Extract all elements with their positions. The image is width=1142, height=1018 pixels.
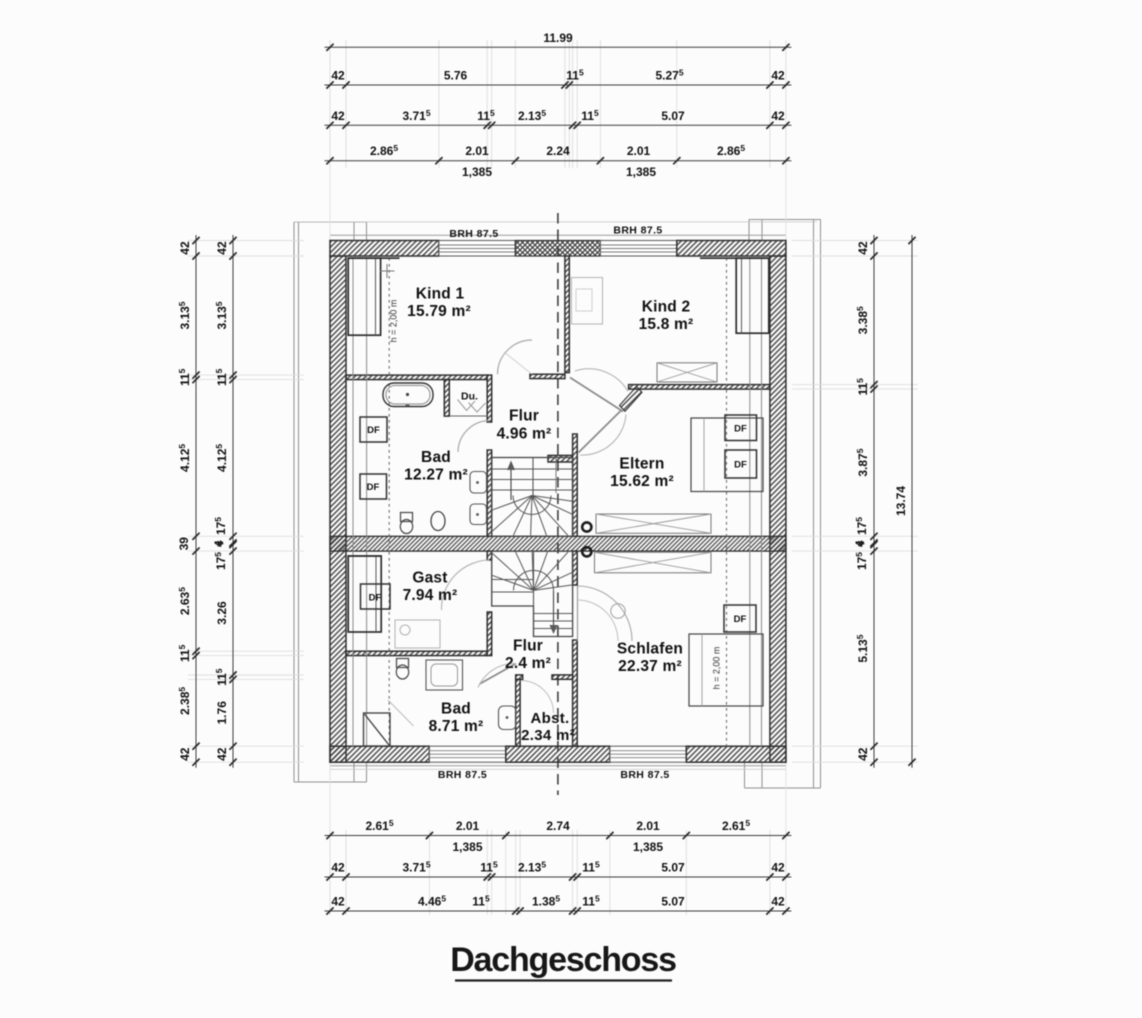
svg-text:8.71 m²: 8.71 m² xyxy=(429,718,484,735)
svg-text:12.27 m²: 12.27 m² xyxy=(404,467,468,484)
svg-text:2.4 m²: 2.4 m² xyxy=(505,655,551,672)
svg-text:2.01: 2.01 xyxy=(627,144,651,158)
svg-text:2.01: 2.01 xyxy=(456,819,480,833)
svg-text:h = 2,00 m: h = 2,00 m xyxy=(389,300,399,343)
svg-text:42: 42 xyxy=(331,109,345,123)
svg-text:42: 42 xyxy=(215,241,229,255)
svg-text:7.94 m²: 7.94 m² xyxy=(403,587,458,604)
svg-text:2.24: 2.24 xyxy=(546,144,570,158)
svg-text:DF: DF xyxy=(369,593,382,604)
svg-text:BRH 87.5: BRH 87.5 xyxy=(613,225,662,237)
svg-text:Bad: Bad xyxy=(421,449,451,466)
svg-text:DF: DF xyxy=(734,614,747,625)
svg-text:42: 42 xyxy=(856,241,870,255)
svg-text:5.07: 5.07 xyxy=(661,109,685,123)
svg-text:h = 2,00 m: h = 2,00 m xyxy=(712,647,722,690)
svg-text:BRH 87.5: BRH 87.5 xyxy=(449,228,498,240)
svg-text:2.74: 2.74 xyxy=(546,819,570,833)
svg-text:2.01: 2.01 xyxy=(636,819,660,833)
svg-text:5.07: 5.07 xyxy=(661,861,685,875)
svg-text:Schlafen: Schlafen xyxy=(617,641,683,658)
svg-text:DF: DF xyxy=(734,460,747,471)
svg-text:42: 42 xyxy=(771,895,785,909)
svg-text:15.79 m²: 15.79 m² xyxy=(407,303,471,320)
svg-text:Eltern: Eltern xyxy=(619,456,664,473)
svg-text:DF: DF xyxy=(734,424,747,435)
svg-text:1.76: 1.76 xyxy=(215,701,229,725)
svg-text:4.96 m²: 4.96 m² xyxy=(497,426,552,443)
svg-text:22.37 m²: 22.37 m² xyxy=(618,658,682,675)
svg-text:DF: DF xyxy=(367,482,380,493)
svg-text:Abst.: Abst. xyxy=(531,710,570,727)
svg-text:2.01: 2.01 xyxy=(465,144,489,158)
svg-text:1,385: 1,385 xyxy=(452,840,482,854)
svg-text:39: 39 xyxy=(177,537,191,551)
svg-text:42: 42 xyxy=(331,861,345,875)
svg-text:DF: DF xyxy=(367,425,380,436)
svg-text:BRH 87.5: BRH 87.5 xyxy=(438,769,487,781)
svg-text:1,385: 1,385 xyxy=(633,840,663,854)
svg-text:2.34 m²: 2.34 m² xyxy=(521,727,575,744)
svg-text:42: 42 xyxy=(856,747,870,761)
svg-text:Kind 2: Kind 2 xyxy=(642,299,691,316)
svg-text:11.99: 11.99 xyxy=(543,31,573,45)
svg-text:5.76: 5.76 xyxy=(444,69,468,83)
svg-text:1,385: 1,385 xyxy=(626,165,656,179)
svg-text:42: 42 xyxy=(331,69,345,83)
svg-text:42: 42 xyxy=(215,747,229,761)
svg-text:42: 42 xyxy=(178,747,192,761)
svg-text:42: 42 xyxy=(771,861,785,875)
svg-text:BRH 87.5: BRH 87.5 xyxy=(620,769,669,781)
svg-text:1,385: 1,385 xyxy=(462,165,492,179)
svg-text:15.62 m²: 15.62 m² xyxy=(610,473,674,490)
svg-text:Bad: Bad xyxy=(441,701,471,718)
svg-text:5.07: 5.07 xyxy=(661,895,685,909)
svg-text:Flur: Flur xyxy=(513,638,543,655)
svg-text:42: 42 xyxy=(178,241,192,255)
svg-text:42: 42 xyxy=(771,69,785,83)
svg-text:3.26: 3.26 xyxy=(215,601,229,625)
svg-text:15.8 m²: 15.8 m² xyxy=(639,316,694,333)
svg-text:Kind 1: Kind 1 xyxy=(416,286,465,303)
svg-text:42: 42 xyxy=(771,109,785,123)
svg-text:Du.: Du. xyxy=(461,391,478,403)
svg-text:42: 42 xyxy=(331,895,345,909)
svg-text:Dachgeschoss: Dachgeschoss xyxy=(450,941,676,979)
svg-text:Flur: Flur xyxy=(509,408,539,425)
svg-text:13.74: 13.74 xyxy=(894,486,908,516)
svg-text:Gast: Gast xyxy=(412,570,447,587)
